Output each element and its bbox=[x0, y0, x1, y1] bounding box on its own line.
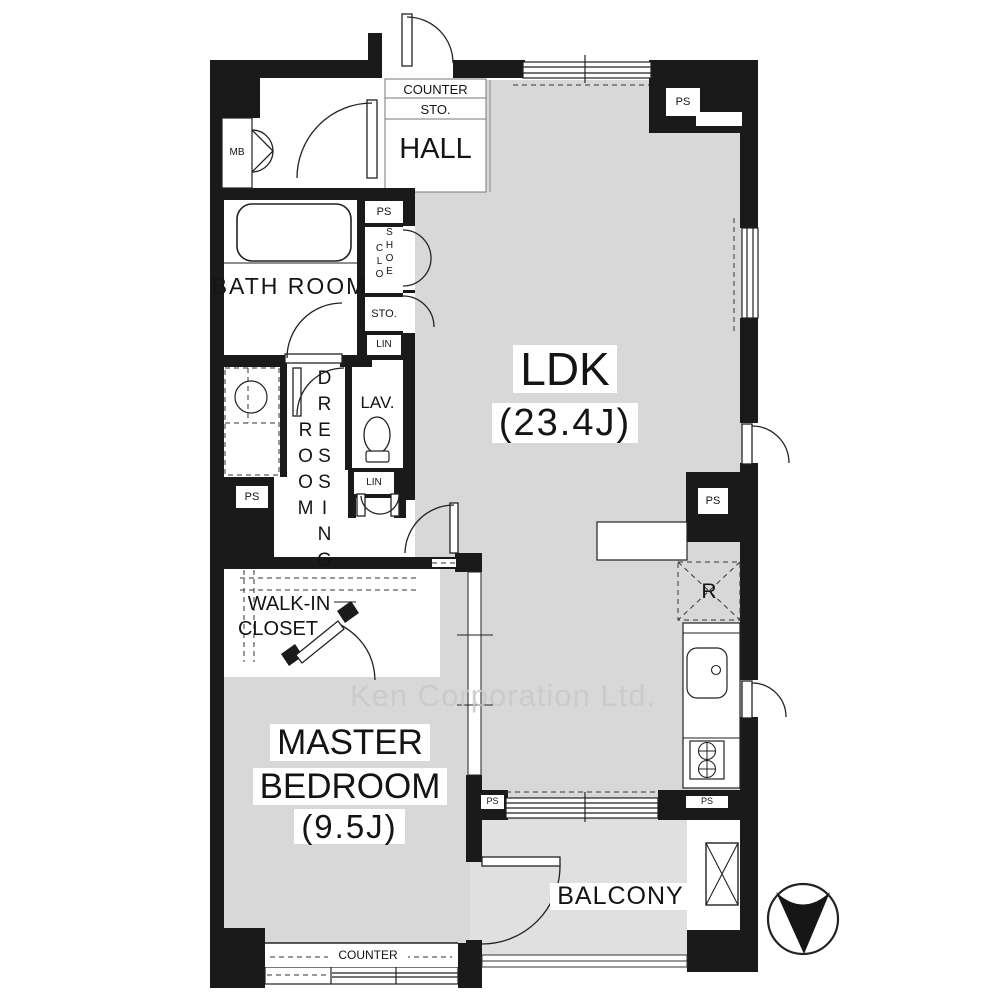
linen-label-lower: LIN bbox=[354, 472, 394, 494]
dressing-label-col-left: ROOM bbox=[296, 368, 315, 524]
dressing-label-col-right: DRESSING bbox=[315, 368, 334, 576]
ldk-size-label: (23.4J) bbox=[492, 403, 638, 443]
shoe-closet-label-col-left: CLO bbox=[374, 227, 384, 282]
top-window bbox=[523, 62, 651, 78]
floorplan-page: Ken Corporation Ltd. COUNTER STO. HALL P… bbox=[0, 0, 1000, 1000]
right-door-arc bbox=[752, 426, 789, 463]
walkin-label-line2: CLOSET bbox=[222, 617, 334, 641]
washer-icon bbox=[235, 381, 267, 413]
meter-box-label: MB bbox=[222, 118, 252, 188]
right-window bbox=[742, 228, 758, 318]
shoe-closet-label: CLO SHOE bbox=[363, 227, 405, 297]
refrigerator-label: R bbox=[678, 562, 740, 620]
hall-label: HALL bbox=[385, 122, 486, 177]
master-bedroom-label-line1: MASTER bbox=[270, 724, 430, 761]
linen-label-upper: LIN bbox=[367, 335, 401, 355]
entrance-door-leaf bbox=[402, 14, 412, 66]
hall-door-leaf bbox=[367, 100, 377, 178]
balcony-door-leaf bbox=[482, 857, 560, 866]
bathroom-label: BATH ROOM bbox=[222, 268, 357, 304]
master-bedroom-size-label: (9.5J) bbox=[294, 809, 404, 844]
lavatory-label: LAV. bbox=[352, 388, 403, 416]
floorplan-canvas bbox=[0, 0, 1000, 1000]
walkin-label-line1: WALK-IN bbox=[228, 592, 350, 616]
kitchen-door-leaf bbox=[742, 681, 752, 718]
shoe-closet-label-col-right: SHOE bbox=[384, 227, 394, 279]
kitchen-door-arc bbox=[752, 683, 786, 717]
kitchen-sink bbox=[687, 648, 727, 698]
ps-label-top-right: PS bbox=[666, 88, 700, 116]
faucet-icon bbox=[712, 666, 721, 675]
bathtub bbox=[237, 204, 351, 261]
balcony-label: BALCONY bbox=[550, 883, 690, 910]
dressing-room-label: ROOM DRESSING bbox=[288, 368, 342, 558]
ps-label-ldk-right: PS bbox=[698, 488, 728, 514]
bedroom-window bbox=[265, 967, 458, 984]
hall-sto-label: STO. bbox=[385, 99, 486, 119]
ldk-label: LDK bbox=[513, 345, 616, 393]
entrance-door-arc bbox=[407, 17, 453, 63]
ps-label-kitchen: PS bbox=[686, 794, 728, 808]
meter-box-doors bbox=[252, 130, 273, 172]
hall-counter-label: COUNTER bbox=[385, 80, 486, 98]
right-door-leaf bbox=[742, 424, 752, 464]
ps-label-bath: PS bbox=[365, 201, 403, 223]
hall-door-arc bbox=[297, 103, 372, 178]
toilet-icon bbox=[364, 417, 390, 453]
master-bedroom-label-line2: BEDROOM bbox=[253, 768, 448, 805]
ps-label-dressing: PS bbox=[236, 486, 268, 508]
ps-label-ldk-bottom: PS bbox=[481, 794, 504, 809]
compass-icon bbox=[768, 884, 838, 954]
bedroom-partition bbox=[468, 572, 481, 775]
storage-label: STO. bbox=[365, 297, 403, 331]
bedroom-counter-label: COUNTER bbox=[328, 946, 408, 964]
kitchen-island-counter bbox=[597, 522, 687, 560]
watermark: Ken Corporation Ltd. bbox=[350, 676, 690, 716]
corridor-door-leaf bbox=[450, 503, 458, 553]
bath-door-leaf bbox=[285, 354, 342, 363]
